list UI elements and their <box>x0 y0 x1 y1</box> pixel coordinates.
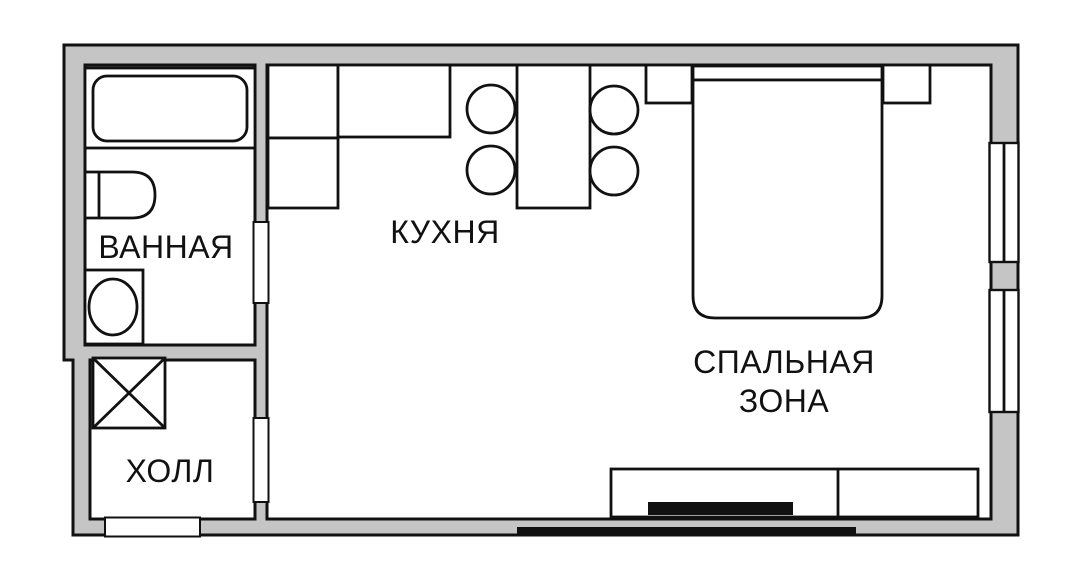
stool-3 <box>590 86 638 134</box>
kitchen-counter <box>268 65 450 208</box>
kitchen-counter-corner <box>268 65 338 138</box>
toilet-bowl <box>85 172 155 218</box>
sleeping-area-label-line1: СПАЛЬНАЯ <box>693 344 875 380</box>
kitchen-counter-top <box>338 65 450 137</box>
nightstand-left <box>646 65 692 103</box>
bathroom-label: ВАННАЯ <box>98 229 233 265</box>
stool-4 <box>590 147 638 195</box>
bed-body <box>693 80 882 318</box>
sleeping-area-label-line2: ЗОНА <box>739 383 829 419</box>
bed <box>693 66 882 318</box>
bathtub <box>85 68 255 148</box>
window-lower <box>990 290 1019 412</box>
bathroom-door-opening <box>254 222 269 303</box>
floor-plan-svg: ВАННАЯ КУХНЯ СПАЛЬНАЯ ЗОНА ХОЛЛ <box>0 0 1075 584</box>
toilet <box>85 172 155 218</box>
radiator-strip <box>517 527 856 535</box>
kitchen-counter-left <box>268 138 338 208</box>
stool-1 <box>467 85 515 133</box>
hall-passage-opening <box>254 418 269 502</box>
window-upper <box>990 143 1019 262</box>
floor-plan-canvas: ВАННАЯ КУХНЯ СПАЛЬНАЯ ЗОНА ХОЛЛ <box>0 0 1075 584</box>
kitchen-label: КУХНЯ <box>390 214 499 250</box>
washbasin <box>85 270 143 344</box>
stool-2 <box>467 146 515 194</box>
tv-stand <box>611 469 978 517</box>
hall-label: ХОЛЛ <box>126 453 215 489</box>
tv-black-bar <box>648 502 793 515</box>
washbasin-bowl <box>89 279 137 335</box>
nightstand-right <box>883 65 930 103</box>
bed-headboard <box>693 66 882 80</box>
dining-table <box>517 65 590 208</box>
entrance-door-opening <box>105 518 200 537</box>
bathtub-inner <box>93 76 247 141</box>
wardrobe-symbol <box>93 358 165 428</box>
